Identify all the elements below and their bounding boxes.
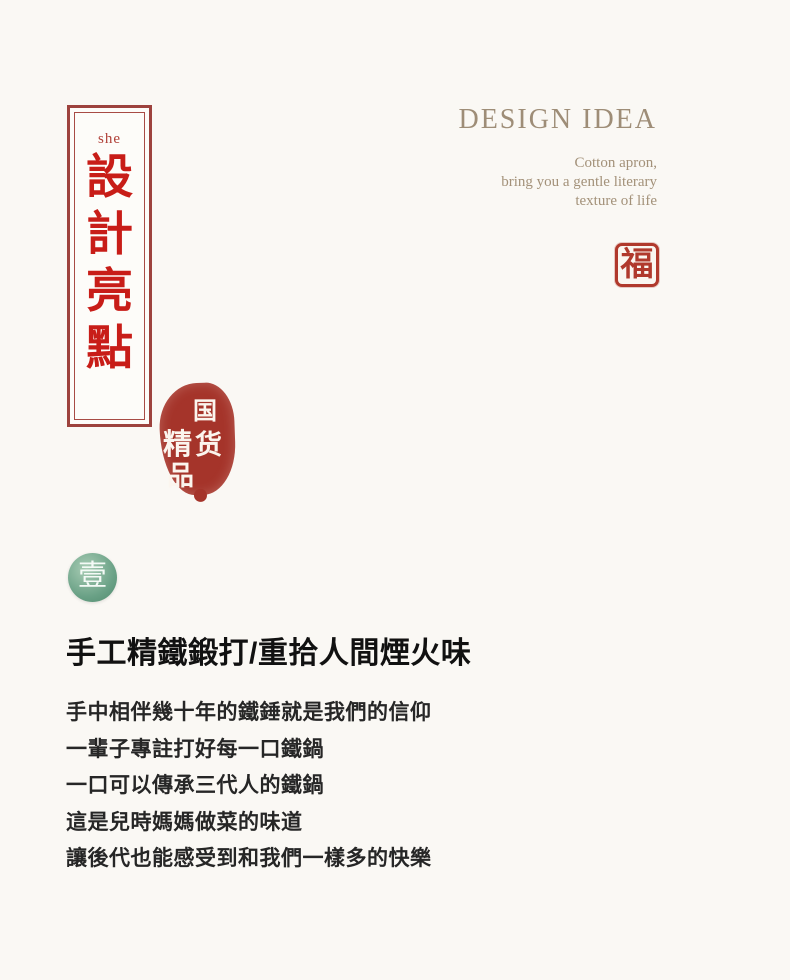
banner-char-3: 亮 [86,262,133,319]
banner-char-4: 點 [86,319,133,376]
stamp-char-pin: 品 [167,454,194,493]
design-idea-title: DESIGN IDEA [458,104,657,136]
section-body: 手中相伴幾十年的鐵錘就是我們的信仰 一輩子專註打好每一口鐵鍋 一口可以傳承三代人… [66,695,432,878]
vertical-title-banner: she 設 計 亮 點 [67,105,152,427]
body-line-2: 一輩子專註打好每一口鐵鍋 [66,732,432,769]
design-idea-subtitle-line-2: bring you a gentle literary [458,173,657,192]
body-line-3: 一口可以傳承三代人的鐵鍋 [66,768,432,805]
banner-pinyin-label: she [98,131,121,148]
body-line-1: 手中相伴幾十年的鐵錘就是我們的信仰 [66,695,432,732]
guohuo-jingpin-stamp: 国 货 精 品 [155,381,237,501]
banner-inner-frame: she 設 計 亮 點 [74,112,145,420]
section-number-badge: 壹 [68,553,117,602]
section-heading: 手工精鐵鍛打/重拾人間煙火味 [66,628,471,672]
design-idea-subtitle-line-1: Cotton apron, [458,154,657,173]
body-line-5: 讓後代也能感受到和我們一樣多的快樂 [66,841,432,878]
section-number-char: 壹 [78,562,107,591]
banner-char-1: 設 [86,148,133,205]
product-design-section: she 設 計 亮 點 国 货 精 品 DESIGN IDEA Cotton a… [0,0,790,980]
body-line-4: 這是兒時媽媽做菜的味道 [66,805,432,842]
design-idea-subtitle: Cotton apron, bring you a gentle literar… [458,154,657,211]
design-idea-block: DESIGN IDEA Cotton apron, bring you a ge… [458,104,657,211]
fu-seal-stamp: 福 [615,243,659,287]
stamp-char-guo: 国 [193,391,217,426]
design-idea-subtitle-line-3: texture of life [458,192,657,211]
stamp-char-huo: 货 [195,423,222,462]
fu-seal-char: 福 [621,249,654,282]
banner-char-2: 計 [86,205,133,262]
